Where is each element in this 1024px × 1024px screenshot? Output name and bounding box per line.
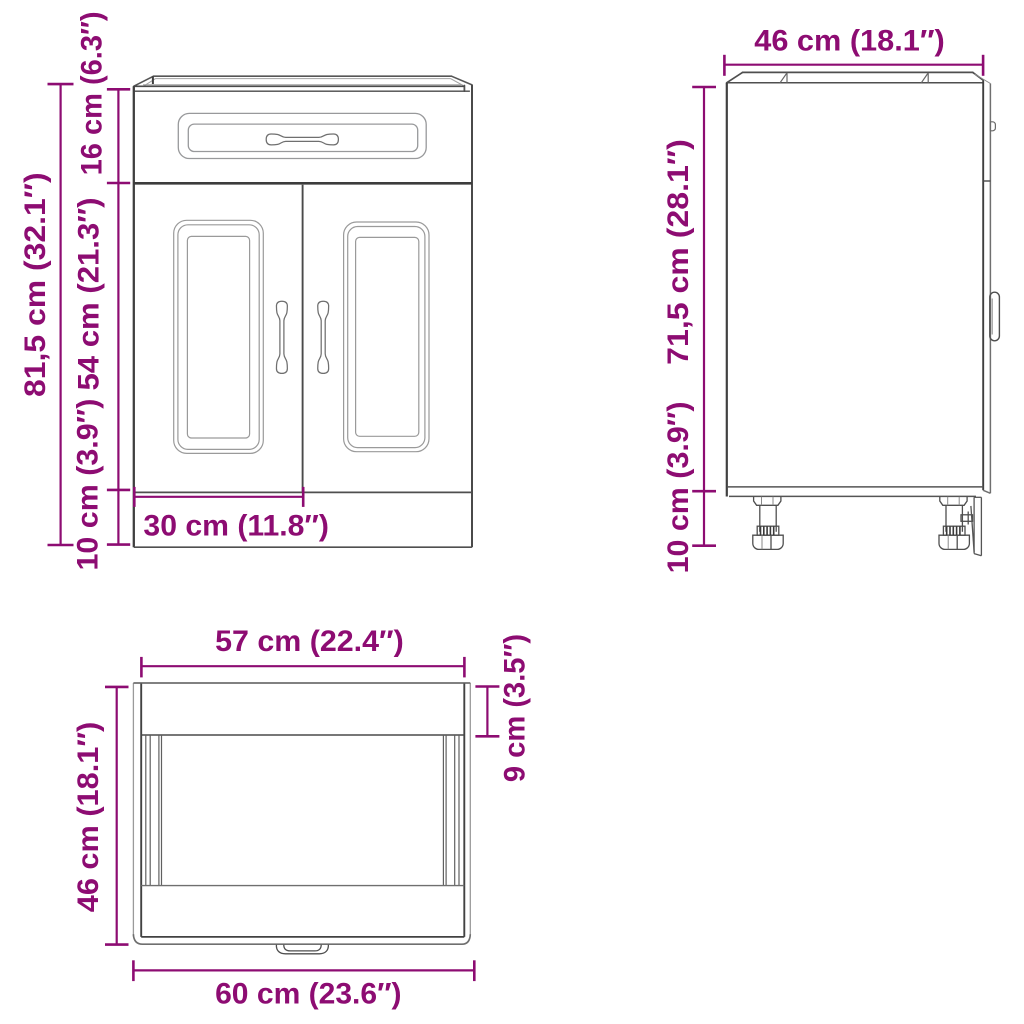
svg-text:81,5 cm (32.1″): 81,5 cm (32.1″) <box>19 172 52 397</box>
svg-text:10 cm (3.9″): 10 cm (3.9″) <box>662 402 695 574</box>
svg-text:57 cm (22.4″): 57 cm (22.4″) <box>215 625 404 658</box>
svg-text:71,5 cm (28.1″): 71,5 cm (28.1″) <box>662 139 695 365</box>
svg-text:60 cm (23.6″): 60 cm (23.6″) <box>215 978 401 1011</box>
svg-text:30 cm (11.8″): 30 cm (11.8″) <box>143 509 329 542</box>
svg-text:46 cm (18.1″): 46 cm (18.1″) <box>754 25 945 58</box>
svg-text:9 cm (3.5″): 9 cm (3.5″) <box>499 634 532 782</box>
svg-text:54 cm (21.3″): 54 cm (21.3″) <box>73 198 106 391</box>
svg-text:10 cm (3.9″): 10 cm (3.9″) <box>72 399 105 571</box>
svg-text:16 cm (6.3″): 16 cm (6.3″) <box>76 11 109 175</box>
svg-text:46 cm (18.1″): 46 cm (18.1″) <box>72 722 105 913</box>
